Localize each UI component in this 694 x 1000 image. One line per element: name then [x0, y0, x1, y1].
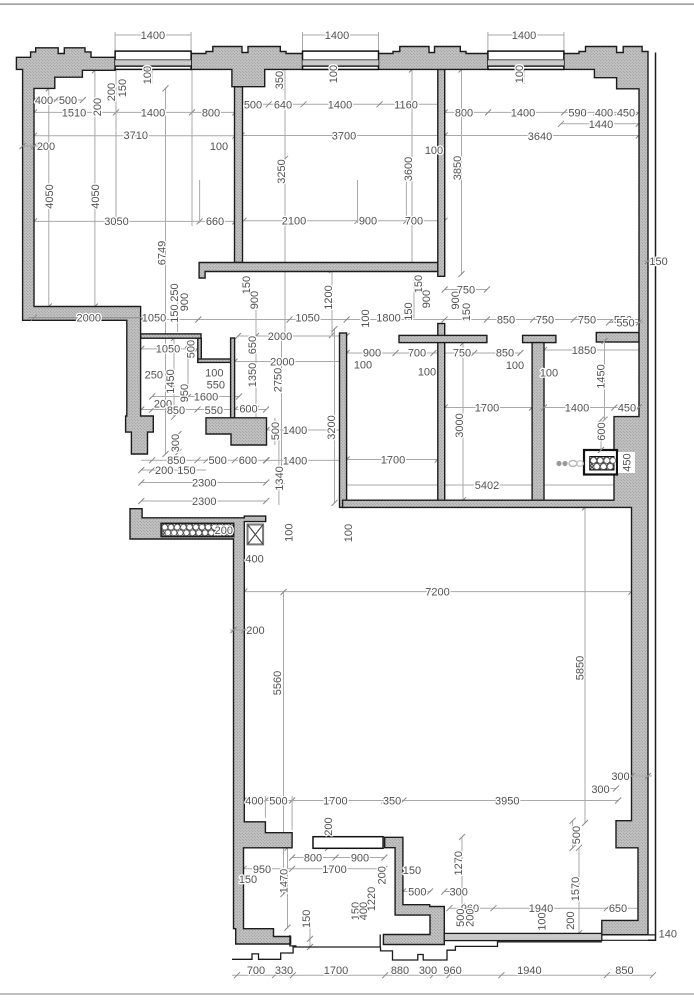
- svg-text:1700: 1700: [381, 455, 405, 467]
- svg-text:880: 880: [391, 965, 409, 977]
- svg-text:300: 300: [450, 887, 468, 899]
- svg-text:1400: 1400: [511, 107, 535, 119]
- svg-text:100: 100: [514, 65, 526, 83]
- svg-text:100: 100: [506, 360, 524, 372]
- svg-text:4050: 4050: [90, 184, 102, 208]
- svg-text:900: 900: [179, 293, 191, 311]
- svg-text:900: 900: [351, 853, 369, 865]
- svg-text:200: 200: [215, 525, 233, 537]
- svg-text:500: 500: [186, 340, 198, 358]
- svg-text:350: 350: [274, 71, 286, 89]
- svg-text:5402: 5402: [475, 480, 499, 492]
- svg-text:100: 100: [343, 524, 355, 542]
- svg-text:1700: 1700: [324, 965, 348, 977]
- svg-text:300: 300: [419, 965, 437, 977]
- svg-text:1050: 1050: [142, 313, 166, 325]
- svg-text:300: 300: [170, 434, 182, 452]
- svg-text:450: 450: [617, 107, 635, 119]
- svg-text:1940: 1940: [517, 965, 541, 977]
- svg-text:800: 800: [202, 107, 220, 119]
- svg-text:1570: 1570: [570, 877, 582, 901]
- svg-text:200: 200: [464, 909, 476, 927]
- svg-text:500: 500: [270, 422, 282, 440]
- svg-text:140: 140: [659, 929, 677, 941]
- svg-text:950: 950: [179, 384, 191, 402]
- svg-text:1400: 1400: [283, 425, 307, 437]
- svg-text:550: 550: [616, 318, 634, 330]
- svg-text:1700: 1700: [322, 864, 346, 876]
- svg-text:100: 100: [425, 145, 443, 157]
- svg-text:100: 100: [540, 368, 558, 380]
- svg-text:200: 200: [92, 98, 104, 116]
- svg-text:1270: 1270: [453, 851, 465, 875]
- svg-text:1400: 1400: [325, 30, 349, 42]
- svg-text:2000: 2000: [77, 313, 101, 325]
- svg-text:3950: 3950: [495, 796, 519, 808]
- svg-text:500: 500: [59, 95, 77, 107]
- svg-text:900: 900: [421, 290, 433, 308]
- svg-text:960: 960: [443, 965, 461, 977]
- svg-text:150: 150: [649, 256, 667, 268]
- svg-text:5850: 5850: [575, 656, 587, 680]
- svg-text:700: 700: [405, 216, 423, 228]
- svg-text:200: 200: [376, 866, 388, 884]
- svg-text:1700: 1700: [475, 403, 499, 415]
- svg-text:1700: 1700: [323, 796, 347, 808]
- svg-text:400: 400: [35, 95, 53, 107]
- svg-text:1200: 1200: [323, 285, 335, 309]
- svg-text:200: 200: [323, 817, 335, 835]
- svg-text:400: 400: [595, 107, 613, 119]
- svg-text:1470: 1470: [279, 869, 291, 893]
- svg-text:150: 150: [461, 303, 473, 321]
- svg-text:1350: 1350: [247, 363, 259, 387]
- svg-text:100: 100: [354, 359, 372, 371]
- svg-text:1440: 1440: [589, 119, 613, 131]
- svg-text:2300: 2300: [192, 478, 216, 490]
- svg-text:200: 200: [565, 911, 577, 929]
- svg-text:2750: 2750: [272, 368, 284, 392]
- svg-text:1400: 1400: [512, 30, 536, 42]
- svg-text:100: 100: [142, 66, 154, 84]
- svg-text:590: 590: [568, 107, 586, 119]
- svg-text:3000: 3000: [454, 413, 466, 437]
- svg-text:1400: 1400: [283, 455, 307, 467]
- svg-text:850: 850: [167, 405, 185, 417]
- svg-text:500: 500: [269, 796, 287, 808]
- svg-text:300: 300: [591, 784, 609, 796]
- svg-text:200: 200: [37, 141, 55, 153]
- svg-text:850: 850: [497, 315, 515, 327]
- svg-text:900: 900: [249, 291, 261, 309]
- svg-text:1050: 1050: [156, 344, 180, 356]
- svg-text:550: 550: [207, 380, 225, 392]
- svg-text:650: 650: [247, 336, 259, 354]
- svg-text:5560: 5560: [272, 671, 284, 695]
- svg-text:450: 450: [618, 403, 636, 415]
- svg-text:700: 700: [408, 347, 426, 359]
- svg-text:400: 400: [245, 554, 263, 566]
- svg-text:900: 900: [359, 216, 377, 228]
- svg-text:1050: 1050: [295, 313, 319, 325]
- svg-text:100: 100: [418, 367, 436, 379]
- svg-text:100: 100: [210, 141, 228, 153]
- svg-text:6749: 6749: [157, 241, 169, 265]
- svg-text:800: 800: [304, 853, 322, 865]
- svg-text:1400: 1400: [141, 30, 165, 42]
- svg-text:200: 200: [246, 625, 264, 637]
- svg-text:7200: 7200: [425, 587, 449, 599]
- svg-text:350: 350: [383, 796, 401, 808]
- svg-text:550: 550: [205, 405, 223, 417]
- svg-text:640: 640: [274, 99, 292, 111]
- svg-text:750: 750: [536, 315, 554, 327]
- svg-text:100: 100: [536, 912, 548, 930]
- svg-text:3050: 3050: [104, 216, 128, 228]
- svg-text:1340: 1340: [274, 466, 286, 490]
- svg-text:850: 850: [496, 347, 514, 359]
- svg-text:1400: 1400: [328, 99, 352, 111]
- svg-text:100: 100: [284, 524, 296, 542]
- svg-text:100: 100: [328, 65, 340, 83]
- svg-text:150: 150: [117, 79, 129, 97]
- svg-text:1510: 1510: [62, 107, 86, 119]
- svg-text:2000: 2000: [270, 357, 294, 369]
- svg-text:300: 300: [611, 771, 629, 783]
- svg-text:1450: 1450: [596, 364, 608, 388]
- svg-text:850: 850: [615, 965, 633, 977]
- svg-text:1450: 1450: [165, 369, 177, 393]
- svg-text:3640: 3640: [528, 131, 552, 143]
- svg-text:650: 650: [609, 903, 627, 915]
- svg-text:330: 330: [275, 965, 293, 977]
- svg-text:450: 450: [622, 453, 634, 471]
- svg-text:500: 500: [571, 826, 583, 844]
- svg-text:500: 500: [408, 887, 426, 899]
- svg-text:3600: 3600: [403, 157, 415, 181]
- svg-text:150: 150: [403, 865, 421, 877]
- svg-text:600: 600: [596, 422, 608, 440]
- svg-text:750: 750: [453, 347, 471, 359]
- svg-text:4050: 4050: [44, 184, 56, 208]
- svg-text:3850: 3850: [452, 156, 464, 180]
- svg-text:800: 800: [455, 107, 473, 119]
- svg-text:750: 750: [578, 315, 596, 327]
- svg-text:100: 100: [360, 309, 372, 327]
- svg-text:250: 250: [145, 370, 163, 382]
- svg-text:3710: 3710: [124, 130, 148, 142]
- svg-text:150: 150: [403, 302, 415, 320]
- svg-text:1160: 1160: [394, 99, 418, 111]
- svg-text:1400: 1400: [565, 403, 589, 415]
- svg-text:500: 500: [209, 455, 227, 467]
- svg-text:150: 150: [301, 910, 313, 928]
- svg-text:100: 100: [205, 368, 223, 380]
- svg-text:2000: 2000: [268, 331, 292, 343]
- svg-text:900: 900: [363, 347, 381, 359]
- svg-text:1400: 1400: [141, 107, 165, 119]
- svg-text:150: 150: [239, 874, 257, 886]
- svg-text:500: 500: [244, 99, 262, 111]
- svg-text:3700: 3700: [332, 131, 356, 143]
- svg-text:1220: 1220: [366, 887, 378, 911]
- svg-text:400: 400: [245, 796, 263, 808]
- svg-text:1850: 1850: [572, 345, 596, 357]
- svg-text:1800: 1800: [376, 313, 400, 325]
- svg-text:750: 750: [457, 285, 475, 297]
- svg-text:2300: 2300: [192, 496, 216, 508]
- svg-text:600: 600: [239, 455, 257, 467]
- svg-text:700: 700: [247, 965, 265, 977]
- svg-text:1600: 1600: [194, 392, 218, 404]
- svg-text:660: 660: [206, 216, 224, 228]
- svg-text:3200: 3200: [326, 415, 338, 439]
- svg-text:150: 150: [177, 465, 195, 477]
- svg-text:3250: 3250: [276, 159, 288, 183]
- svg-text:2100: 2100: [282, 216, 306, 228]
- svg-text:600: 600: [239, 404, 257, 416]
- svg-text:200: 200: [155, 465, 173, 477]
